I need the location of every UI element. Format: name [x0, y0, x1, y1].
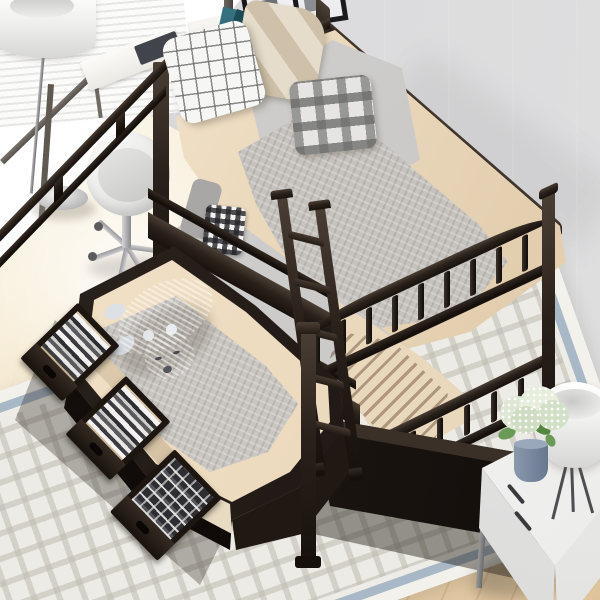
near-foot-post-cap — [296, 322, 320, 334]
spindle — [366, 306, 372, 345]
chair-caster — [88, 252, 97, 261]
spindle — [496, 246, 502, 285]
plant-pot — [514, 442, 548, 482]
pillow-gray-plaid — [288, 74, 377, 156]
bedroom-product-photo — [0, 0, 600, 600]
plant-flower — [511, 406, 541, 434]
plant-flower — [537, 400, 569, 430]
near-foot-post — [301, 330, 316, 562]
spindle — [522, 234, 528, 273]
spindle — [392, 294, 398, 333]
spindle — [470, 258, 476, 297]
plant-pot-rim — [514, 439, 548, 449]
spindle — [444, 270, 450, 309]
spindle — [418, 282, 424, 321]
lamp-shade — [0, 0, 96, 58]
ladder-foot — [349, 467, 364, 482]
near-foot-post-pad — [295, 556, 321, 568]
ladder-hook — [270, 188, 293, 200]
lamp-shade-opening — [10, 0, 74, 18]
